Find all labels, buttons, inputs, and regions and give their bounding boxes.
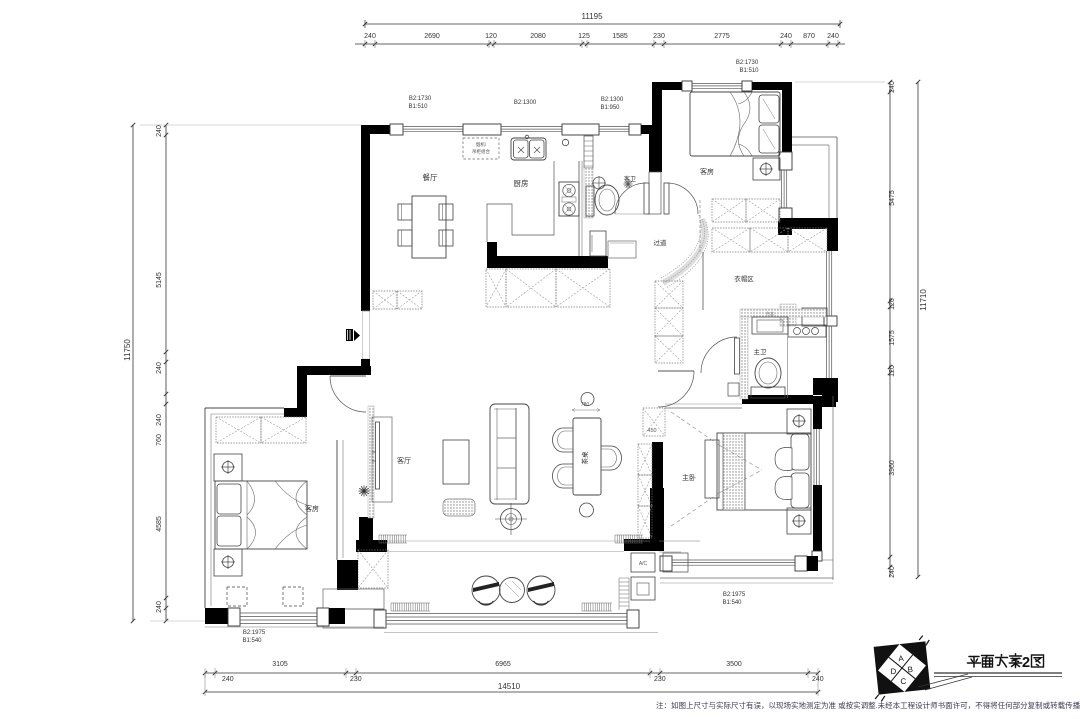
svg-text:230: 230 <box>654 676 666 683</box>
svg-text:衣帽区: 衣帽区 <box>734 274 754 283</box>
svg-text:1585: 1585 <box>612 33 628 40</box>
svg-text:230: 230 <box>350 676 362 683</box>
svg-text:4585: 4585 <box>156 516 163 532</box>
svg-text:过道: 过道 <box>654 238 668 247</box>
svg-text:主卫: 主卫 <box>754 347 768 356</box>
svg-text:C: C <box>900 677 907 687</box>
svg-text:5145: 5145 <box>156 272 163 288</box>
svg-text:125: 125 <box>578 33 590 40</box>
svg-text:2: 2 <box>1022 655 1030 671</box>
svg-text:120: 120 <box>485 33 497 40</box>
svg-text:B2:1730: B2:1730 <box>736 60 759 66</box>
svg-text:B: B <box>907 665 913 675</box>
svg-text:注：如图上尺寸与实际尺寸有误，以现场实地测定为准 或按实调整: 注：如图上尺寸与实际尺寸有误，以现场实地测定为准 或按实调整.未经本工程设计师书… <box>656 700 1080 710</box>
svg-text:B1:510: B1:510 <box>408 104 428 110</box>
svg-text:240: 240 <box>889 566 896 578</box>
svg-text:120: 120 <box>889 298 896 310</box>
svg-text:B1:540: B1:540 <box>722 600 742 606</box>
svg-text:B2:1300: B2:1300 <box>601 97 624 103</box>
svg-text:B2:1300: B2:1300 <box>514 100 537 106</box>
svg-text:客房: 客房 <box>700 167 714 176</box>
svg-text:11710: 11710 <box>919 289 928 311</box>
svg-text:11750: 11750 <box>123 339 132 361</box>
svg-text:240: 240 <box>156 362 163 374</box>
svg-text:2690: 2690 <box>424 33 440 40</box>
svg-text:230: 230 <box>653 33 665 40</box>
svg-text:240: 240 <box>364 33 376 40</box>
svg-text:台盆: 台盆 <box>766 310 774 316</box>
svg-text:1575: 1575 <box>889 330 896 346</box>
svg-text:240: 240 <box>780 33 792 40</box>
svg-text:120: 120 <box>889 365 896 377</box>
svg-text:11195: 11195 <box>581 12 603 21</box>
svg-text:吊柜组合: 吊柜组合 <box>472 148 490 155</box>
svg-text:B2:1730: B2:1730 <box>409 96 432 102</box>
svg-text:5475: 5475 <box>889 190 896 206</box>
svg-text:主卧: 主卧 <box>682 473 696 482</box>
svg-text:客卫: 客卫 <box>624 175 636 183</box>
svg-text:760: 760 <box>156 434 163 446</box>
svg-text:240: 240 <box>156 414 163 426</box>
svg-text:2080: 2080 <box>530 33 546 40</box>
svg-text:3500: 3500 <box>726 661 742 668</box>
svg-text:240: 240 <box>889 81 896 93</box>
svg-text:厨房: 厨房 <box>514 178 529 188</box>
svg-text:14510: 14510 <box>498 682 521 691</box>
svg-text:2775: 2775 <box>714 33 730 40</box>
svg-text:B2:1975: B2:1975 <box>723 592 746 598</box>
svg-text:240: 240 <box>827 33 839 40</box>
svg-text:240: 240 <box>156 601 163 613</box>
svg-text:3960: 3960 <box>889 460 896 476</box>
svg-text:B1:950: B1:950 <box>600 105 620 111</box>
svg-text:B1:510: B1:510 <box>739 68 759 74</box>
svg-text:茶桌: 茶桌 <box>580 451 589 465</box>
svg-text:6965: 6965 <box>495 661 511 668</box>
svg-text:A/C: A/C <box>639 561 648 567</box>
svg-text:240: 240 <box>222 676 234 683</box>
svg-text:客厅: 客厅 <box>397 456 411 465</box>
svg-text:D: D <box>890 667 897 677</box>
svg-text:450: 450 <box>647 428 656 434</box>
svg-text:240: 240 <box>156 125 163 137</box>
svg-text:B1:540: B1:540 <box>242 638 262 644</box>
svg-text:烟机/: 烟机/ <box>476 141 487 148</box>
svg-text:870: 870 <box>803 33 815 40</box>
svg-text:B2:1975: B2:1975 <box>243 630 266 636</box>
svg-text:餐厅: 餐厅 <box>423 173 438 182</box>
svg-text:3105: 3105 <box>272 661 288 668</box>
svg-text:客房: 客房 <box>305 504 319 513</box>
